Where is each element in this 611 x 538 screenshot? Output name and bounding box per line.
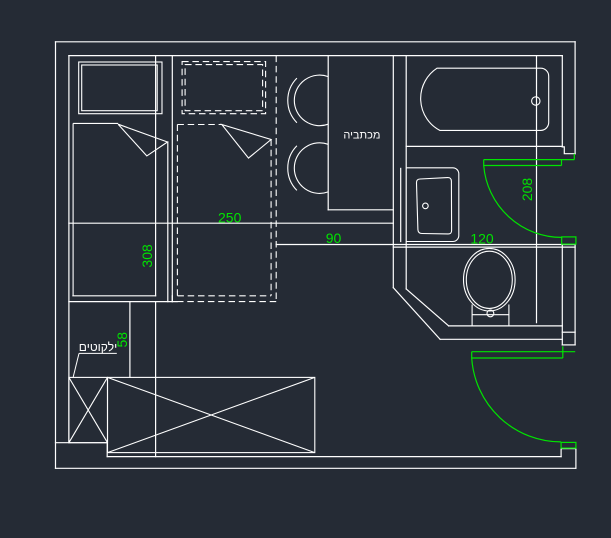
svg-text:מכתביה: מכתביה xyxy=(343,130,380,142)
svg-text:90: 90 xyxy=(326,230,342,246)
svg-text:58: 58 xyxy=(114,332,130,348)
svg-text:120: 120 xyxy=(470,231,494,247)
svg-text:208: 208 xyxy=(519,178,535,202)
svg-text:250: 250 xyxy=(218,210,242,226)
svg-text:308: 308 xyxy=(139,244,155,268)
svg-text:ילקוטים: ילקוטים xyxy=(79,340,117,354)
